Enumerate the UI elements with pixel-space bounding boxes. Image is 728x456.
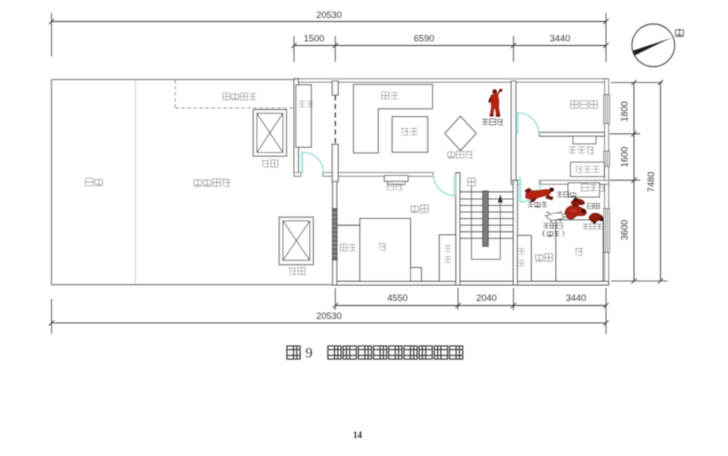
svg-text:4550: 4550 <box>387 293 407 303</box>
svg-text:20530: 20530 <box>316 10 342 20</box>
svg-text:9: 9 <box>305 346 312 362</box>
svg-text:14: 14 <box>353 430 363 440</box>
svg-text:6590: 6590 <box>414 34 434 44</box>
svg-text:3440: 3440 <box>550 34 570 44</box>
svg-text:20530: 20530 <box>316 311 342 321</box>
svg-text:1600: 1600 <box>620 147 630 167</box>
svg-text:1800: 1800 <box>620 101 630 121</box>
svg-text:3440: 3440 <box>566 293 586 303</box>
svg-text:3600: 3600 <box>620 220 630 240</box>
svg-text:7480: 7480 <box>646 172 656 192</box>
svg-text:1500: 1500 <box>304 34 324 44</box>
svg-text:2040: 2040 <box>476 293 496 303</box>
